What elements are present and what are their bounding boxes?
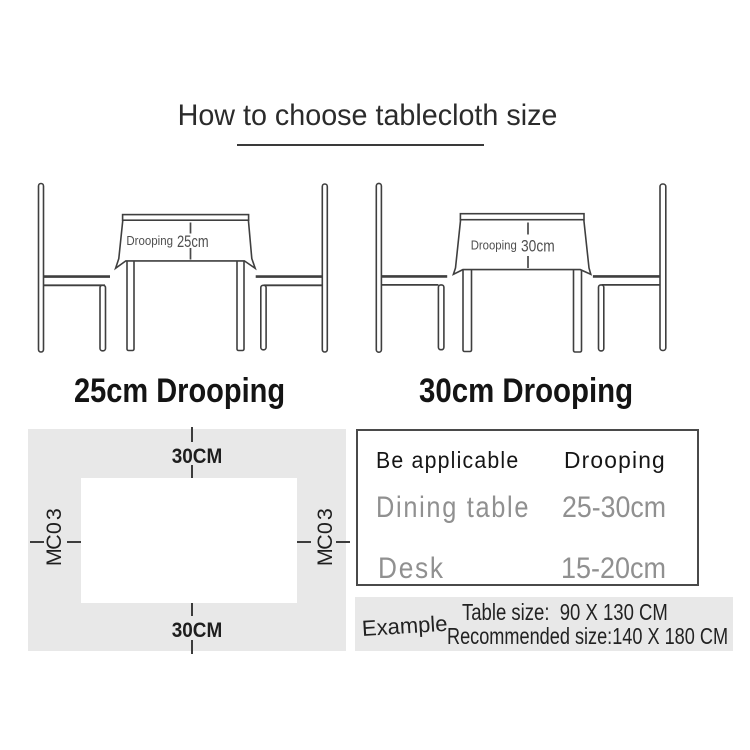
svg-text:25cm: 25cm — [177, 233, 209, 251]
svg-text:Drooping: Drooping — [471, 238, 517, 253]
svg-text:Drooping: Drooping — [126, 233, 173, 248]
svg-text:30cm: 30cm — [521, 238, 555, 256]
